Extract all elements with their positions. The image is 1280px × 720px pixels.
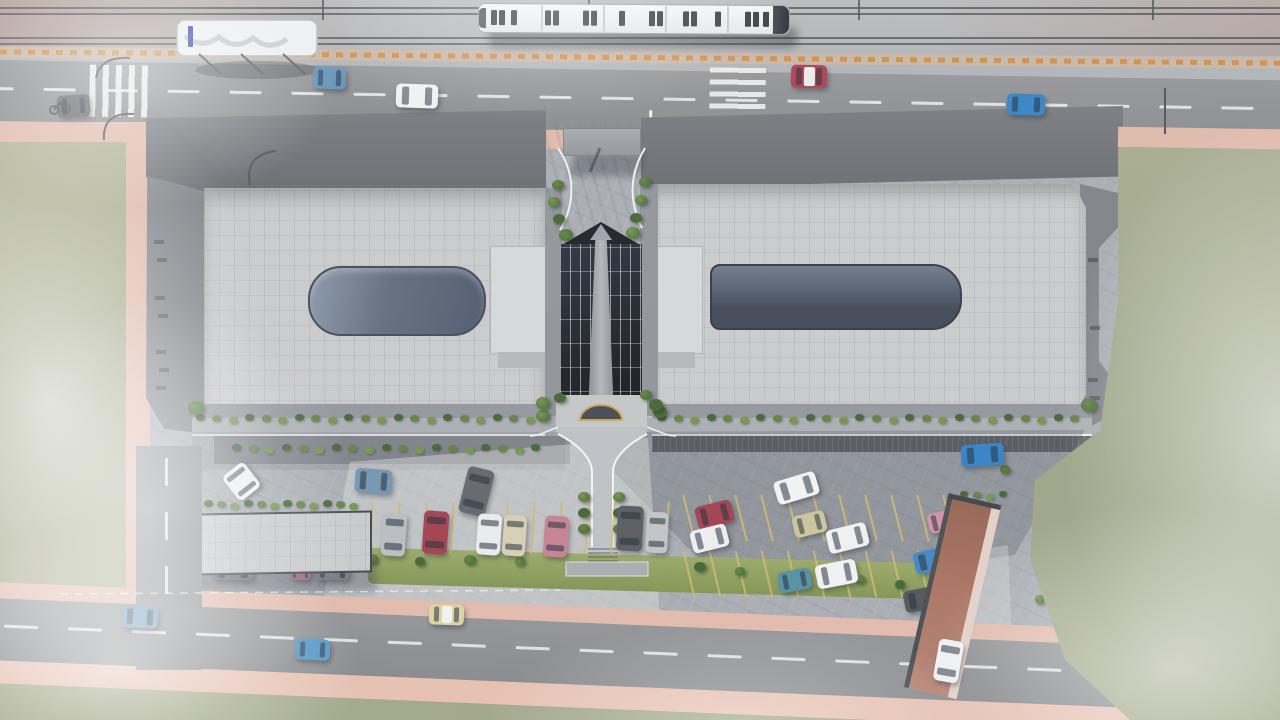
bicycle-icon [50, 103, 70, 114]
street-furniture [0, 0, 1280, 720]
aerial-render-scene [0, 0, 1280, 720]
